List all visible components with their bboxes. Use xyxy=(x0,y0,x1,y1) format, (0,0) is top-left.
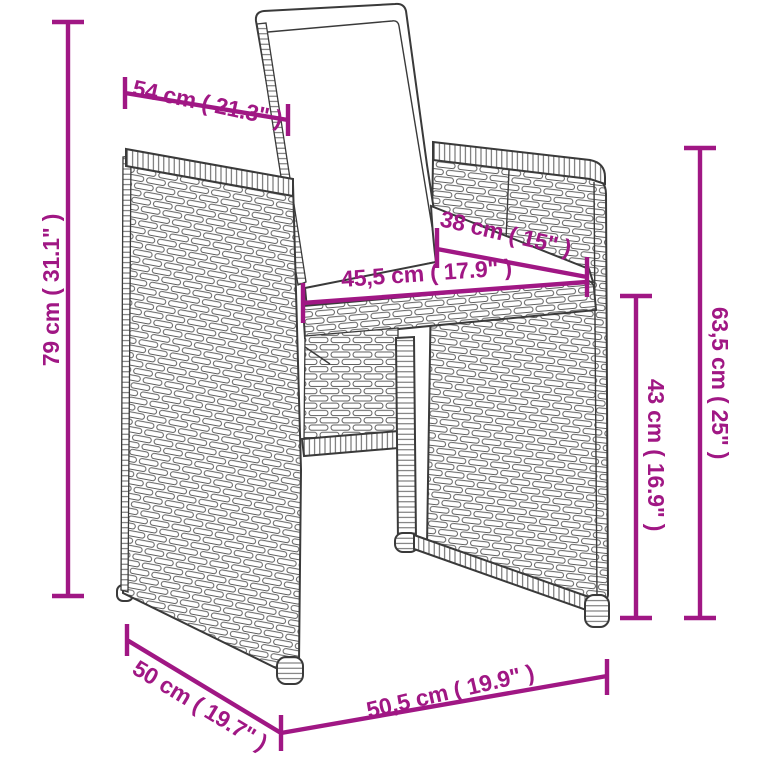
dimension-label-back-width: 54 cm ( 21.3" ) xyxy=(130,75,284,132)
left-front-foot xyxy=(277,657,303,684)
product-dimension-diagram: 54 cm ( 21.3" ) 79 cm ( 31.1" ) 38 cm ( … xyxy=(0,0,767,767)
dimension-label-total-height: 79 cm ( 31.1" ) xyxy=(38,214,64,366)
right-back-foot xyxy=(585,595,609,627)
dimension-total-height: 79 cm ( 31.1" ) xyxy=(38,22,84,596)
dimension-armrest-height: 63,5 cm ( 25" ) xyxy=(684,148,733,618)
dimension-back-width: 54 cm ( 21.3" ) xyxy=(125,75,288,136)
dimension-label-seat-height: 43 cm ( 16.9" ) xyxy=(643,379,669,531)
front-apron xyxy=(304,328,398,441)
front-right-leg xyxy=(395,337,418,552)
dimension-seat-height: 43 cm ( 16.9" ) xyxy=(620,296,669,618)
left-panel-body xyxy=(123,154,301,672)
dimension-label-armrest-height: 63,5 cm ( 25" ) xyxy=(707,307,733,459)
left-armrest-panel xyxy=(117,149,303,684)
dimension-label-depth: 50 cm ( 19.7" ) xyxy=(128,655,272,756)
chair-dimension-illustration: 54 cm ( 21.3" ) 79 cm ( 31.1" ) 38 cm ( … xyxy=(0,0,767,767)
dimension-base-width: 50,5 cm ( 19.9" ) xyxy=(281,659,607,733)
front-right-leg-post xyxy=(396,337,416,542)
